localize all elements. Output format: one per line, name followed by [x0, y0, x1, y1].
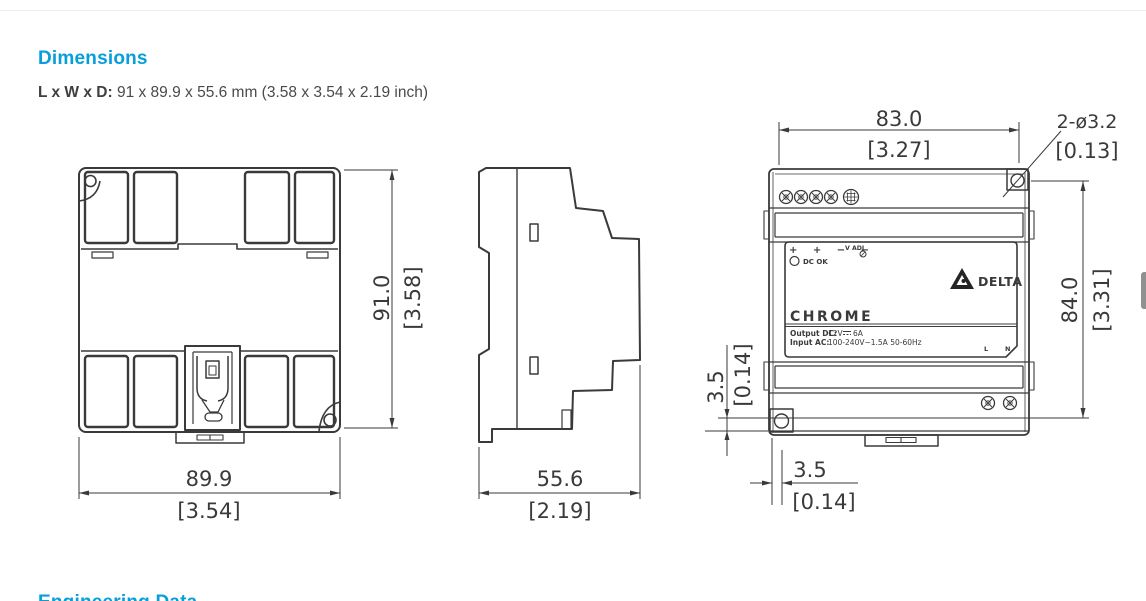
label-content: + + − − V ADJ DC OK DELTA CHROME Output … — [785, 245, 1023, 353]
mounting-hole-icon — [770, 409, 793, 432]
upper-band-lines — [769, 208, 1029, 242]
output-value-voltage: 12V — [828, 329, 844, 338]
side-profile-outline — [479, 168, 640, 442]
side-depth-dimension: 55.6 [2.19] — [479, 365, 640, 523]
lwd-label: L x W x D: — [38, 84, 113, 101]
terminal-cutout — [245, 172, 289, 243]
terminal-cutout — [295, 172, 334, 243]
front-width-inch: [3.27] — [867, 138, 930, 162]
front-height-dimension: 84.0 [3.31] — [718, 181, 1114, 418]
terminal-cutout — [85, 172, 128, 243]
corner-hole-icon — [85, 176, 96, 187]
hole-offset-bottom-dimension: 3.5 [0.14] — [750, 438, 858, 514]
corner-hole-arc — [79, 181, 100, 201]
side-slot — [530, 357, 538, 374]
hole-callout: 2-ø3.2 [0.13] — [1003, 111, 1119, 197]
dc-ok-label: DC OK — [803, 258, 828, 266]
terminal-cutout — [294, 356, 334, 427]
side-depth-inch: [2.19] — [528, 499, 591, 523]
hole-offset-left-inch: [0.14] — [731, 343, 755, 406]
front-height-inch: [3.31] — [1090, 268, 1114, 331]
terminal-screws — [780, 191, 838, 204]
din-clip — [185, 346, 240, 430]
hole-callout-label: 2-ø3.2 — [1057, 111, 1118, 133]
rear-body-outline — [79, 168, 340, 432]
side-view-drawing: 55.6 [2.19] — [455, 160, 665, 525]
front-height-mm: 84.0 — [1058, 277, 1082, 324]
side-slot — [530, 224, 538, 241]
next-section-heading: Engineering Data — [38, 592, 197, 601]
input-label: Input AC: — [790, 338, 829, 347]
line-terminal-label: L — [984, 345, 988, 353]
hole-offset-left-dimension: 3.5 [0.14] — [704, 343, 768, 456]
hole-offset-left-mm: 3.5 — [704, 370, 728, 403]
bottom-tab — [865, 435, 938, 446]
rear-height-inch: [3.58] — [401, 266, 425, 329]
hole-callout-inch: [0.13] — [1055, 139, 1118, 163]
side-depth-mm: 55.6 — [537, 467, 584, 491]
front-body-outline — [769, 169, 1029, 435]
dc-symbol-icon — [843, 332, 851, 335]
vent-notch — [307, 252, 328, 258]
front-view-drawing: + + − − V ADJ DC OK DELTA CHROME Output … — [695, 105, 1120, 525]
housing-step-line — [81, 244, 338, 249]
section-heading: Dimensions — [38, 48, 148, 70]
rear-width-dimension: 89.9 [3.54] — [79, 437, 340, 523]
dc-ok-led-icon — [790, 257, 799, 266]
page-top-divider — [0, 10, 1146, 11]
front-width-dimension: 83.0 [3.27] — [779, 107, 1019, 165]
rear-width-mm: 89.9 — [186, 467, 233, 491]
vadj-potentiometer-icon — [844, 190, 859, 205]
rear-view-drawing: 89.9 [3.54] 91.0 [3.58] — [60, 160, 440, 525]
lwd-value: 91 x 89.9 x 55.6 mm (3.58 x 3.54 x 2.19 … — [113, 84, 428, 101]
delta-logo-icon — [950, 268, 974, 289]
terminal-cutout — [134, 356, 177, 427]
lwd-dimensions-text: L x W x D: 91 x 89.9 x 55.6 mm (3.58 x 3… — [38, 84, 428, 102]
rear-width-inch: [3.54] — [177, 499, 240, 523]
terminal-cutout — [134, 172, 177, 243]
datasheet-page: Dimensions L x W x D: 91 x 89.9 x 55.6 m… — [0, 0, 1146, 601]
vent-notch — [92, 252, 113, 258]
rear-height-dimension: 91.0 [3.58] — [344, 170, 425, 428]
input-screws — [982, 397, 1017, 410]
neutral-terminal-label: N — [1005, 345, 1010, 353]
side-tab-line — [562, 410, 571, 429]
label-divider — [785, 324, 1017, 327]
hole-offset-bottom-inch: [0.14] — [792, 490, 855, 514]
lower-band-lines — [769, 362, 1029, 393]
input-value: 100-240V~1.5A 50-60Hz — [828, 338, 922, 347]
brand-name: DELTA — [978, 274, 1023, 289]
bottom-tab — [176, 432, 244, 443]
scrollbar-thumb[interactable] — [1141, 272, 1146, 309]
front-width-mm: 83.0 — [876, 107, 923, 131]
rear-height-mm: 91.0 — [370, 275, 394, 322]
terminal-cutout — [85, 356, 128, 427]
output-value-current: 6A — [853, 329, 864, 338]
product-logo: CHROME — [790, 309, 873, 325]
terminal-cutout — [245, 356, 288, 427]
hole-offset-bottom-mm: 3.5 — [793, 458, 826, 482]
